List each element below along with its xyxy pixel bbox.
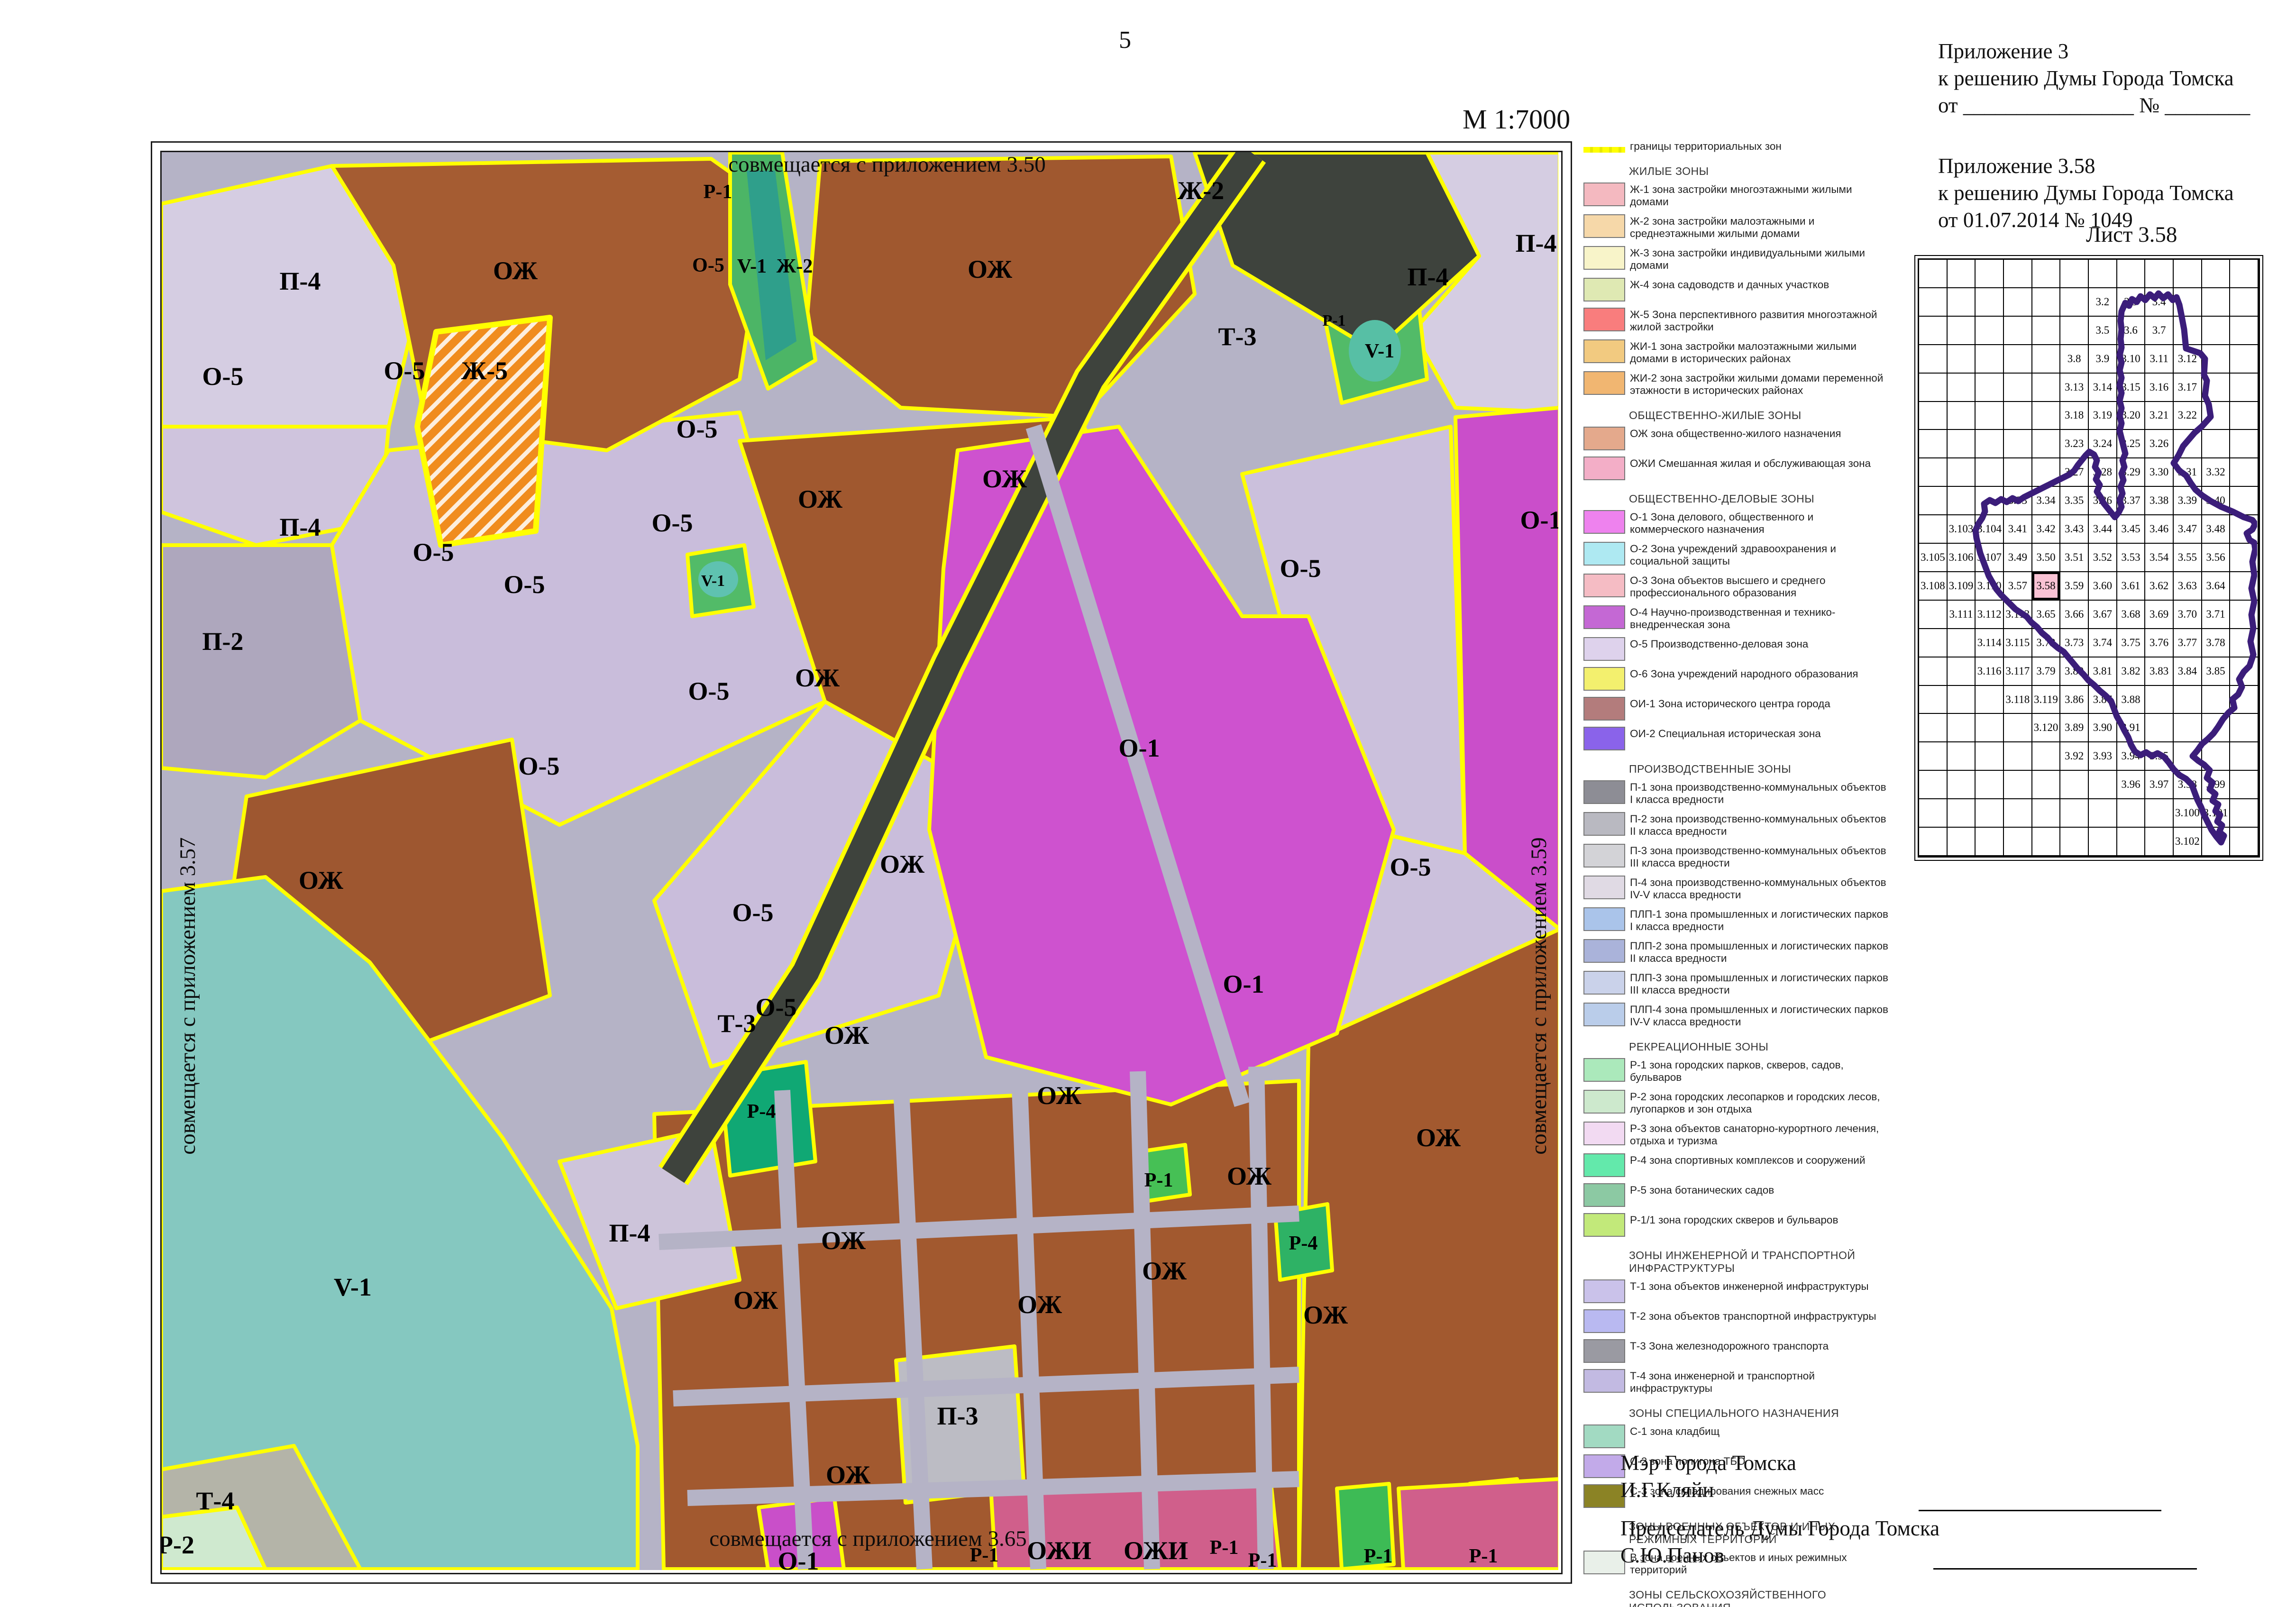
sheet-index-cell xyxy=(2202,686,2231,714)
legend-item-label: границы территориальных зон xyxy=(1630,139,1782,153)
sheet-index-cell: 3.72 xyxy=(2032,629,2061,657)
sheet-index-cell: 3.112 xyxy=(1976,601,2004,629)
sheet-index-cell: 3.49 xyxy=(2004,544,2032,572)
sheet-index-cell: 3.69 xyxy=(2145,601,2174,629)
legend-swatch xyxy=(1583,1369,1625,1393)
sheet-index-cell: 3.57 xyxy=(2004,572,2032,601)
sheet-index-cell: 3.60 xyxy=(2089,572,2117,601)
legend-item: О-2 Зона учреждений здравоохранения и со… xyxy=(1583,542,1889,567)
sheet-index-cell xyxy=(2230,601,2259,629)
sheet-index-grid: 3.23.33.43.53.63.73.83.93.103.113.123.13… xyxy=(1918,258,2260,858)
legend-item: Ж-5 Зона перспективного развития многоэт… xyxy=(1583,308,1889,333)
map-zone-label: ОЖ xyxy=(1416,1125,1461,1150)
map-zone-label: ОЖ xyxy=(1227,1163,1271,1189)
legend-swatch xyxy=(1583,510,1625,534)
sheet-index-cell: 3.86 xyxy=(2060,686,2089,714)
legend-section-title: ЗОНЫ ИНЖЕНЕРНОЙ И ТРАНСПОРТНОЙ ИНФРАСТРУ… xyxy=(1629,1249,1889,1275)
sheet-index-cell xyxy=(2202,317,2231,345)
legend-swatch xyxy=(1583,907,1625,931)
legend-item-label: П-2 зона производственно-коммунальных об… xyxy=(1630,812,1889,838)
legend-swatch xyxy=(1583,605,1625,629)
sheet-index-cell: 3.52 xyxy=(2089,544,2117,572)
sheet-index-cell: 3.33 xyxy=(2004,487,2032,515)
sheet-index-cell xyxy=(1919,402,1948,430)
sheet-index-cell: 3.58 xyxy=(2032,572,2061,601)
sheet-index-cell: 3.50 xyxy=(2032,544,2061,572)
sheet-index-cell xyxy=(2004,771,2032,799)
sheet-index-cell: 3.40 xyxy=(2202,487,2231,515)
sheet-index-cell: 3.37 xyxy=(2117,487,2146,515)
map-zone-label: П-4 xyxy=(609,1220,650,1246)
sheet-index-cell xyxy=(2032,345,2061,374)
sheet-index-cell: 3.7 xyxy=(2145,317,2174,345)
map-zone-label: О-5 xyxy=(384,358,425,383)
map-zones-art xyxy=(162,152,1558,1570)
sheet-index-cell: 3.99 xyxy=(2202,771,2231,799)
sheet-index-cell xyxy=(2060,317,2089,345)
sheet-index-cell: 3.90 xyxy=(2089,714,2117,742)
sheet-index-cell: 3.92 xyxy=(2060,742,2089,771)
legend-swatch xyxy=(1583,339,1625,363)
legend-item-label: ОЖ зона общественно-жилого назначения xyxy=(1630,427,1841,440)
map-zone-label: ОЖИ xyxy=(1124,1538,1188,1563)
legend-swatch xyxy=(1583,727,1625,750)
legend-item: О-3 Зона объектов высшего и среднего про… xyxy=(1583,574,1889,599)
legend-swatch xyxy=(1583,1339,1625,1363)
legend-swatch xyxy=(1583,844,1625,867)
legend-swatch xyxy=(1583,214,1625,238)
map-zone-label: Р-1 xyxy=(1364,1546,1393,1566)
map-zone-label: V-1 xyxy=(334,1274,372,1300)
sheet-index-cell: 3.94 xyxy=(2117,742,2146,771)
sheet-index-cell xyxy=(2202,402,2231,430)
sheet-index-cell: 3.110 xyxy=(1976,572,2004,601)
sheet-index-cell xyxy=(2089,799,2117,828)
signature-chairman-name: С.Ю.Панов xyxy=(1620,1542,2142,1569)
map-zone-label: О-1 xyxy=(1119,735,1160,761)
legend-item: Р-4 зона спортивных комплексов и сооруже… xyxy=(1583,1153,1889,1177)
legend-item-label: ОИ-1 Зона исторического центра города xyxy=(1630,697,1830,710)
map-zone-label: ОЖ xyxy=(826,1462,870,1488)
sheet-index-cell: 3.6 xyxy=(2117,317,2146,345)
legend-item-label: Р-4 зона спортивных комплексов и сооруже… xyxy=(1630,1153,1865,1167)
legend-swatch xyxy=(1583,246,1625,270)
legend-item: Ж-4 зона садоводств и дачных участков xyxy=(1583,278,1889,301)
sheet-index-cell: 3.24 xyxy=(2089,430,2117,458)
legend-swatch xyxy=(1583,939,1625,963)
legend-swatch xyxy=(1583,667,1625,691)
sheet-index-cell: 3.42 xyxy=(2032,515,2061,544)
legend-item: Т-1 зона объектов инженерной инфраструкт… xyxy=(1583,1279,1889,1303)
sheet-index-cell xyxy=(1919,374,1948,402)
map-canvas: Р-1ОЖО-5V-1Ж-2ОЖЖ-2Т-3Р-1V-1П-4П-4П-4О-5… xyxy=(162,152,1558,1570)
legend-section-title: ЗОНЫ СПЕЦИАЛЬНОГО НАЗНАЧЕНИЯ xyxy=(1629,1407,1889,1420)
sheet-index-cell xyxy=(2202,714,2231,742)
sheet-index-cell: 3.29 xyxy=(2117,458,2146,487)
legend-swatch xyxy=(1583,278,1625,301)
sheet-index-cell xyxy=(2060,260,2089,288)
sheet-index-cell xyxy=(2230,657,2259,686)
sheet-index-cell: 3.114 xyxy=(1976,629,2004,657)
map-zone-label: О-5 xyxy=(202,364,244,389)
sheet-index-cell: 3.16 xyxy=(2145,374,2174,402)
sheet-index-cell: 3.87 xyxy=(2089,686,2117,714)
legend-item: ПЛП-3 зона промышленных и логистических … xyxy=(1583,971,1889,996)
sheet-index-cell xyxy=(2032,288,2061,317)
sheet-index-cell: 3.44 xyxy=(2089,515,2117,544)
map-zone-label: ОЖ xyxy=(795,665,840,691)
legend-section-title: ПРОИЗВОДСТВЕННЫЕ ЗОНЫ xyxy=(1629,763,1889,776)
sheet-index-cell: 3.76 xyxy=(2145,629,2174,657)
sheet-index-cell: 3.45 xyxy=(2117,515,2146,544)
signature-mayor-name: И.Г.Кляйн xyxy=(1620,1477,2142,1504)
legend-item: П-3 зона производственно-коммунальных об… xyxy=(1583,844,1889,869)
sheet-index-cell xyxy=(1948,458,1976,487)
sheet-index-cell: 3.15 xyxy=(2117,374,2146,402)
sheet-index-cell: 3.27 xyxy=(2060,458,2089,487)
zoning-map-sheet: 5 М 1:7000 xyxy=(0,0,2296,1607)
sheet-index-cell xyxy=(1948,430,1976,458)
legend-section-title: РЕКРЕАЦИОННЫЕ ЗОНЫ xyxy=(1629,1041,1889,1053)
sheet-index-cell: 3.111 xyxy=(1948,601,1976,629)
sheet-index-cell: 3.96 xyxy=(2117,771,2146,799)
map-zone-label: ОЖ xyxy=(824,1023,869,1048)
sheet-index-cell: 3.14 xyxy=(2089,374,2117,402)
map-note-left: совмещается с приложением 3.57 xyxy=(175,837,201,1154)
sheet-index-cell xyxy=(1948,771,1976,799)
sheet-index-cell xyxy=(2230,544,2259,572)
sheet-index-cell xyxy=(2117,799,2146,828)
sheet-index-cell xyxy=(2004,742,2032,771)
sheet-index-cell: 3.13 xyxy=(2060,374,2089,402)
sheet-index-cell xyxy=(1948,657,1976,686)
map-zone-label: ОЖ xyxy=(821,1228,866,1253)
legend-swatch xyxy=(1583,971,1625,995)
sheet-index-cell xyxy=(1976,317,2004,345)
legend-swatch xyxy=(1583,1122,1625,1145)
map-note-top: совмещается с приложением 3.50 xyxy=(728,152,1045,177)
sheet-index-cell xyxy=(2032,458,2061,487)
legend-item-label: П-3 зона производственно-коммунальных об… xyxy=(1630,844,1889,869)
legend-swatch xyxy=(1583,637,1625,661)
legend-item: О-5 Производственно-деловая зона xyxy=(1583,637,1889,661)
legend-item: ОЖ зона общественно-жилого назначения xyxy=(1583,427,1889,450)
sheet-index-cell xyxy=(2060,771,2089,799)
sheet-index-cell xyxy=(2202,288,2231,317)
sheet-index-cell: 3.113 xyxy=(2004,601,2032,629)
sheet-index-cell xyxy=(1948,260,1976,288)
sheet-index-cell: 3.93 xyxy=(2089,742,2117,771)
sheet-index-cell: 3.62 xyxy=(2145,572,2174,601)
sheet-index-cell xyxy=(1948,742,1976,771)
legend-item: П-4 зона производственно-коммунальных об… xyxy=(1583,876,1889,901)
legend-swatch xyxy=(1583,812,1625,836)
sheet-index-cell: 3.56 xyxy=(2202,544,2231,572)
sheet-index-cell: 3.30 xyxy=(2145,458,2174,487)
map-zone-label: Р-1 xyxy=(1144,1170,1173,1190)
sheet-index-cell: 3.82 xyxy=(2117,657,2146,686)
map-zone-label: О-5 xyxy=(519,753,560,779)
sheet-index-cell: 3.47 xyxy=(2174,515,2202,544)
sheet-index-cell: 3.100 xyxy=(2174,799,2202,828)
map-zone-label: О-5 xyxy=(732,900,774,925)
map-zone-label: О-1 xyxy=(1520,507,1559,533)
map-zone-label: Р-1 xyxy=(704,182,732,202)
map-zone-label: ОЖ xyxy=(1303,1302,1348,1328)
legend-item: ЖИ-1 зона застройки малоэтажными жилыми … xyxy=(1583,339,1889,365)
sheet-index-cell xyxy=(1976,771,2004,799)
legend-item-label: Ж-1 зона застройки многоэтажными жилыми … xyxy=(1630,183,1889,208)
sheet-index-cell: 3.10 xyxy=(2117,345,2146,374)
map-zone-label: ОЖИ xyxy=(1027,1538,1091,1563)
appendix-draft-line3: от ________________ № ________ xyxy=(1938,92,2289,119)
map-scale: М 1:7000 xyxy=(1463,103,1570,135)
legend-item-label: Ж-5 Зона перспективного развития многоэт… xyxy=(1630,308,1889,333)
sheet-index-cell: 3.38 xyxy=(2145,487,2174,515)
sheet-index-cell xyxy=(2089,771,2117,799)
sheet-index-cell xyxy=(1976,686,2004,714)
map-zone-label: О-5 xyxy=(756,995,797,1020)
map-zone-label: ОЖ xyxy=(982,466,1027,492)
sheet-index-cell: 3.11 xyxy=(2145,345,2174,374)
sheet-index-cell xyxy=(2230,345,2259,374)
legend-swatch xyxy=(1583,1183,1625,1207)
sheet-index-cell xyxy=(2174,686,2202,714)
sheet-index-cell xyxy=(2230,402,2259,430)
legend-item: Т-4 зона инженерной и транспортной инфра… xyxy=(1583,1369,1889,1395)
sheet-index-cell xyxy=(1976,714,2004,742)
sheet-index-cell: 3.95 xyxy=(2145,742,2174,771)
sheet-index-cell xyxy=(2230,260,2259,288)
sheet-index-cell xyxy=(1919,657,1948,686)
map-zone-label: Ж-2 xyxy=(777,256,813,276)
legend-item: Ж-3 зона застройки индивидуальными жилым… xyxy=(1583,246,1889,272)
sheet-index-cell xyxy=(2004,714,2032,742)
sheet-index-cell xyxy=(1919,799,1948,828)
map-zone-label: V-1 xyxy=(701,573,725,589)
sheet-index-cell: 3.101 xyxy=(2202,799,2231,828)
map-zone-label: П-4 xyxy=(280,514,321,540)
sheet-index-cell xyxy=(1919,714,1948,742)
sheet-index-cell xyxy=(2145,260,2174,288)
sheet-index-cell: 3.36 xyxy=(2089,487,2117,515)
sheet-index-cell: 3.41 xyxy=(2004,515,2032,544)
sheet-index-cell xyxy=(1919,458,1948,487)
sheet-index-cell xyxy=(1948,487,1976,515)
legend-item: Т-3 Зона железнодорожного транспорта xyxy=(1583,1339,1889,1363)
sheet-index-cell xyxy=(1919,345,1948,374)
sheet-index-cell: 3.54 xyxy=(2145,544,2174,572)
map-zone-label: Т-3 xyxy=(1218,324,1257,349)
legend-item: П-1 зона производственно-коммунальных об… xyxy=(1583,780,1889,806)
legend-item: Р-1/1 зона городских скверов и бульваров xyxy=(1583,1213,1889,1237)
sheet-index-cell xyxy=(2117,828,2146,856)
sheet-index-cell: 3.21 xyxy=(2145,402,2174,430)
sheet-index-cell xyxy=(2230,629,2259,657)
sheet-index-cell xyxy=(1919,515,1948,544)
sheet-index-cell: 3.64 xyxy=(2202,572,2231,601)
map-zone-label: Р-1 xyxy=(1248,1551,1277,1570)
sheet-index-cell xyxy=(1919,601,1948,629)
legend-item-label: О-2 Зона учреждений здравоохранения и со… xyxy=(1630,542,1889,567)
sheet-index-cell: 3.89 xyxy=(2060,714,2089,742)
sheet-index-cell xyxy=(2202,374,2231,402)
legend-swatch xyxy=(1583,427,1625,450)
sheet-index-cell: 3.79 xyxy=(2032,657,2061,686)
legend-swatch xyxy=(1583,371,1625,395)
sheet-index-cell xyxy=(1948,799,1976,828)
sheet-index-cell xyxy=(2230,317,2259,345)
legend-item: С-1 зона кладбищ xyxy=(1583,1424,1889,1448)
map-zone-label: Т-3 xyxy=(718,1011,756,1036)
sheet-index-cell: 3.19 xyxy=(2089,402,2117,430)
sheet-index-cell: 3.2 xyxy=(2089,288,2117,317)
sheet-index-cell: 3.53 xyxy=(2117,544,2146,572)
sheet-index-cell: 3.51 xyxy=(2060,544,2089,572)
sheet-index-cell xyxy=(2230,742,2259,771)
sheet-index-cell xyxy=(2174,714,2202,742)
sheet-index-cell: 3.5 xyxy=(2089,317,2117,345)
sheet-index-cell: 3.65 xyxy=(2032,601,2061,629)
signature-mayor: Мэр Города Томска И.Г.Кляйн xyxy=(1620,1450,2142,1504)
sheet-index-cell xyxy=(2060,799,2089,828)
sheet-index-cell xyxy=(2032,260,2061,288)
signature-chairman-role: Председатель Думы Города Томска xyxy=(1620,1515,2142,1542)
legend-item-label: Т-1 зона объектов инженерной инфраструкт… xyxy=(1630,1279,1869,1293)
legend: границы территориальных зонЖИЛЫЕ ЗОНЫЖ-1… xyxy=(1583,127,1889,1607)
legend-item: О-1 Зона делового, общественного и комме… xyxy=(1583,510,1889,536)
legend-item-label: Ж-4 зона садоводств и дачных участков xyxy=(1630,278,1829,291)
sheet-index-cell xyxy=(2174,260,2202,288)
map-zone-label: ОЖ xyxy=(1017,1292,1062,1317)
sheet-index-cell xyxy=(2145,828,2174,856)
legend-swatch xyxy=(1583,876,1625,899)
sheet-index-cell: 3.4 xyxy=(2145,288,2174,317)
sheet-index-cell xyxy=(2060,288,2089,317)
sheet-index-cell: 3.81 xyxy=(2089,657,2117,686)
legend-swatch xyxy=(1583,1058,1625,1082)
sheet-index-cell xyxy=(1919,629,1948,657)
map-zone-label: ОЖ xyxy=(798,486,842,512)
sheet-index-cell: 3.117 xyxy=(2004,657,2032,686)
legend-item-label: ПЛП-4 зона промышленных и логистических … xyxy=(1630,1003,1889,1028)
legend-item: Ж-1 зона застройки многоэтажными жилыми … xyxy=(1583,183,1889,208)
sheet-index-cell: 3.12 xyxy=(2174,345,2202,374)
legend-section-title: ЗОНЫ СЕЛЬСКОХОЗЯЙСТВЕННОГО ИСПОЛЬЗОВАНИЯ xyxy=(1629,1589,1889,1607)
legend-swatch xyxy=(1583,457,1625,480)
sheet-index-cell: 3.3 xyxy=(2117,288,2146,317)
sheet-index-cell xyxy=(2032,374,2061,402)
legend-swatch xyxy=(1583,1279,1625,1303)
sheet-index-cell: 3.108 xyxy=(1919,572,1948,601)
map-zone-label: V-1 xyxy=(1365,341,1394,361)
legend-swatch xyxy=(1583,1090,1625,1114)
legend-item: Р-1 зона городских парков, скверов, садо… xyxy=(1583,1058,1889,1084)
legend-item: границы территориальных зон xyxy=(1583,139,1889,153)
sheet-index-cell: 3.115 xyxy=(2004,629,2032,657)
sheet-index-cell: 3.107 xyxy=(1976,544,2004,572)
sheet-index-cell xyxy=(2230,828,2259,856)
sheet-index-cell: 3.23 xyxy=(2060,430,2089,458)
sheet-index-cell xyxy=(1976,828,2004,856)
signature-chairman: Председатель Думы Города Томска С.Ю.Пано… xyxy=(1620,1515,2142,1569)
legend-item-label: О-3 Зона объектов высшего и среднего про… xyxy=(1630,574,1889,599)
map-zone-label: П-3 xyxy=(937,1403,979,1429)
sheet-index-cell xyxy=(1948,345,1976,374)
sheet-index-cell xyxy=(2060,828,2089,856)
legend-item: ОИ-2 Специальная историческая зона xyxy=(1583,727,1889,750)
sheet-index-cell: 3.46 xyxy=(2145,515,2174,544)
legend-item: ОЖИ Смешанная жилая и обслуживающая зона xyxy=(1583,457,1889,480)
sheet-index-cell xyxy=(1919,771,1948,799)
sheet-index-cell: 3.48 xyxy=(2202,515,2231,544)
legend-swatch xyxy=(1583,1454,1625,1478)
sheet-index-cell: 3.66 xyxy=(2060,601,2089,629)
sheet-index-cell: 3.109 xyxy=(1948,572,1976,601)
appendix-final-line2: к решению Думы Города Томска xyxy=(1938,180,2289,207)
sheet-index-cell: 3.20 xyxy=(2117,402,2146,430)
sheet-index-cell: 3.85 xyxy=(2202,657,2231,686)
sheet-index-cell: 3.103 xyxy=(1948,515,1976,544)
sheet-index-cell xyxy=(2004,799,2032,828)
sheet-index-cell xyxy=(1976,430,2004,458)
legend-item: Т-2 зона объектов транспортной инфрастру… xyxy=(1583,1309,1889,1333)
sheet-index-cell xyxy=(2202,345,2231,374)
legend-swatch xyxy=(1583,574,1625,597)
legend-item-label: Р-1/1 зона городских скверов и бульваров xyxy=(1630,1213,1838,1226)
sheet-index-cell xyxy=(1948,288,1976,317)
sheet-index-cell xyxy=(2174,430,2202,458)
legend-swatch xyxy=(1583,1153,1625,1177)
sheet-index-cell: 3.67 xyxy=(2089,601,2117,629)
sheet-index-cell: 3.25 xyxy=(2117,430,2146,458)
legend-item: ПЛП-1 зона промышленных и логистических … xyxy=(1583,907,1889,933)
map-zone-label: ОЖ xyxy=(1037,1083,1081,1108)
legend-swatch xyxy=(1583,147,1625,153)
legend-swatch xyxy=(1583,183,1625,206)
legend-item-label: П-4 зона производственно-коммунальных об… xyxy=(1630,876,1889,901)
legend-item: Ж-2 зона застройки малоэтажными и средне… xyxy=(1583,214,1889,240)
sheet-index-cell xyxy=(2004,430,2032,458)
sheet-index-cell xyxy=(2174,317,2202,345)
sheet-index-cell xyxy=(2004,402,2032,430)
map-note-bottom: совмещается с приложением 3.65 xyxy=(709,1526,1026,1552)
legend-swatch xyxy=(1583,308,1625,331)
sheet-index-cell xyxy=(1948,686,1976,714)
sheet-index-cell xyxy=(2032,799,2061,828)
map-zone-label: Ж-5 xyxy=(461,358,508,383)
map-zone-label: О-5 xyxy=(677,416,718,442)
legend-item: ОИ-1 Зона исторического центра города xyxy=(1583,697,1889,721)
sheet-index-cell xyxy=(2230,714,2259,742)
legend-item: Р-5 зона ботанических садов xyxy=(1583,1183,1889,1207)
legend-item-label: О-1 Зона делового, общественного и комме… xyxy=(1630,510,1889,536)
sheet-index-cell: 3.105 xyxy=(1919,544,1948,572)
sheet-index-cell xyxy=(2032,430,2061,458)
sheet-index-cell xyxy=(2004,374,2032,402)
legend-item-label: Р-1 зона городских парков, скверов, садо… xyxy=(1630,1058,1889,1084)
sheet-index-cell xyxy=(2004,458,2032,487)
map-zone-label: Т-4 xyxy=(196,1488,235,1514)
legend-item: О-6 Зона учреждений народного образовани… xyxy=(1583,667,1889,691)
sheet-index-cell xyxy=(1948,402,1976,430)
sheet-index-cell xyxy=(1948,629,1976,657)
legend-swatch xyxy=(1583,542,1625,566)
sheet-index-cell xyxy=(2230,430,2259,458)
sheet-index-cell: 3.18 xyxy=(2060,402,2089,430)
sheet-index-cell: 3.77 xyxy=(2174,629,2202,657)
sheet-index-cell xyxy=(1976,458,2004,487)
